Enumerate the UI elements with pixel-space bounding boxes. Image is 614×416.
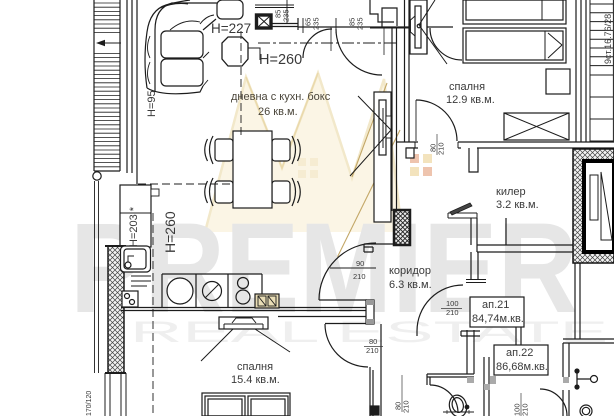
svg-text:H=260: H=260	[259, 52, 302, 68]
svg-text:210: 210	[366, 346, 379, 355]
svg-text:210: 210	[402, 400, 411, 413]
svg-text:26 кв.м.: 26 кв.м.	[258, 106, 298, 118]
svg-text:12.9 кв.м.: 12.9 кв.м.	[446, 94, 495, 106]
svg-text:235: 235	[312, 17, 321, 30]
svg-text:80: 80	[369, 337, 377, 346]
svg-text:9ст.16.76/28: 9ст.16.76/28	[603, 14, 613, 64]
svg-text:86,68м.кв.: 86,68м.кв.	[496, 361, 548, 373]
svg-text:H=95: H=95	[146, 90, 158, 117]
svg-text:коридор: коридор	[389, 265, 431, 277]
svg-text:235: 235	[282, 9, 291, 22]
svg-text:H=227: H=227	[211, 21, 251, 36]
svg-text:90: 90	[356, 259, 364, 268]
svg-text:210: 210	[521, 403, 530, 416]
svg-text:235: 235	[356, 17, 365, 30]
svg-text:15.4 кв.м.: 15.4 кв.м.	[231, 374, 280, 386]
svg-text:H=203 *: H=203 *	[128, 206, 140, 247]
svg-text:спалня: спалня	[237, 361, 273, 373]
svg-text:спалня: спалня	[449, 81, 485, 93]
svg-text:ап.21: ап.21	[482, 299, 509, 311]
svg-text:84,74м.кв.: 84,74м.кв.	[472, 313, 524, 325]
svg-text:дневна с кухн. бокс: дневна с кухн. бокс	[231, 91, 331, 103]
svg-text:210: 210	[446, 308, 459, 317]
svg-text:3.2 кв.м.: 3.2 кв.м.	[496, 199, 539, 211]
svg-text:H=260: H=260	[162, 211, 178, 253]
svg-text:килер: килер	[496, 186, 526, 198]
svg-text:210: 210	[437, 142, 446, 155]
svg-text:ап.22: ап.22	[506, 347, 533, 359]
svg-text:6.3 кв.м.: 6.3 кв.м.	[389, 279, 432, 291]
svg-text:100: 100	[446, 299, 459, 308]
svg-text:210: 210	[353, 272, 366, 281]
svg-text:170/120: 170/120	[86, 391, 93, 416]
